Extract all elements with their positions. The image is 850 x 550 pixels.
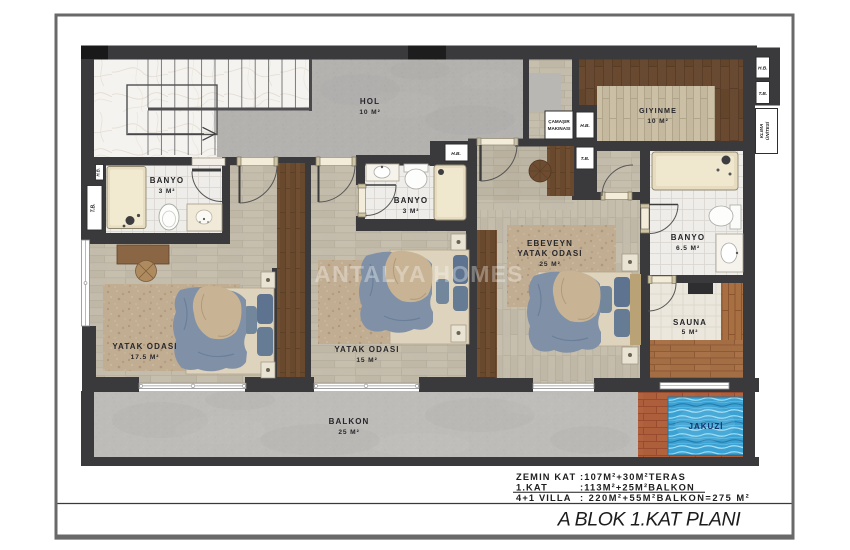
- svg-text:25 M²: 25 M²: [539, 261, 560, 268]
- svg-text:T.B.: T.B.: [91, 203, 97, 212]
- svg-text:: 220M²+55M²BALKON=275 M²: : 220M²+55M²BALKON=275 M²: [580, 493, 750, 503]
- svg-text:YATAK ODASI: YATAK ODASI: [517, 249, 582, 258]
- svg-text:MAKINASI: MAKINASI: [548, 126, 571, 131]
- svg-text:ANTALYA HOMES: ANTALYA HOMES: [314, 261, 523, 287]
- svg-text:25 M²: 25 M²: [338, 429, 359, 436]
- svg-text:15 M²: 15 M²: [356, 357, 377, 364]
- svg-text::113M²+25M²BALKON: :113M²+25M²BALKON: [580, 483, 695, 493]
- svg-text:3 M²: 3 M²: [403, 208, 420, 215]
- svg-text:BANYO: BANYO: [150, 176, 184, 185]
- svg-text:H.B.: H.B.: [451, 151, 461, 157]
- svg-text:ÇAMAŞIR: ÇAMAŞIR: [548, 119, 570, 124]
- svg-text:ÜNİTESİ: ÜNİTESİ: [764, 121, 770, 140]
- svg-text:BANYO: BANYO: [394, 196, 428, 205]
- svg-text:YATAK ODASI: YATAK ODASI: [112, 342, 177, 351]
- svg-text:BANYO: BANYO: [671, 233, 705, 242]
- svg-text:1.KAT: 1.KAT: [516, 483, 548, 493]
- svg-text:4+1 VILLA: 4+1 VILLA: [516, 493, 572, 503]
- svg-text:ZEMIN KAT: ZEMIN KAT: [516, 472, 576, 482]
- svg-text::107M²+30M²TERAS: :107M²+30M²TERAS: [580, 472, 686, 482]
- svg-text:JAKUZİ: JAKUZİ: [689, 422, 724, 431]
- svg-text:A BLOK 1.KAT PLANI: A BLOK 1.KAT PLANI: [557, 509, 741, 531]
- svg-text:GIYINME: GIYINME: [639, 106, 677, 115]
- svg-text:17.5 M²: 17.5 M²: [131, 354, 160, 361]
- svg-text:EBEVEYN: EBEVEYN: [527, 239, 573, 248]
- svg-text:3 M²: 3 M²: [159, 188, 176, 195]
- svg-text:H.B.: H.B.: [580, 123, 590, 129]
- svg-text:H.B.: H.B.: [758, 66, 768, 72]
- svg-text:T.B.: T.B.: [581, 156, 590, 162]
- svg-text:5 M²: 5 M²: [682, 329, 699, 336]
- svg-text:SAUNA: SAUNA: [673, 318, 707, 327]
- svg-text:10 M²: 10 M²: [647, 118, 668, 125]
- svg-text:H.B.: H.B.: [96, 168, 101, 176]
- svg-text:BALKON: BALKON: [329, 417, 370, 426]
- svg-text:T.B.: T.B.: [758, 91, 767, 97]
- svg-text:YATAK ODASI: YATAK ODASI: [334, 345, 399, 354]
- svg-text:6.5 M²: 6.5 M²: [676, 245, 700, 252]
- svg-text:KLIMA: KLIMA: [759, 124, 764, 139]
- svg-text:10 M²: 10 M²: [359, 109, 380, 116]
- svg-text:HOL: HOL: [360, 97, 380, 106]
